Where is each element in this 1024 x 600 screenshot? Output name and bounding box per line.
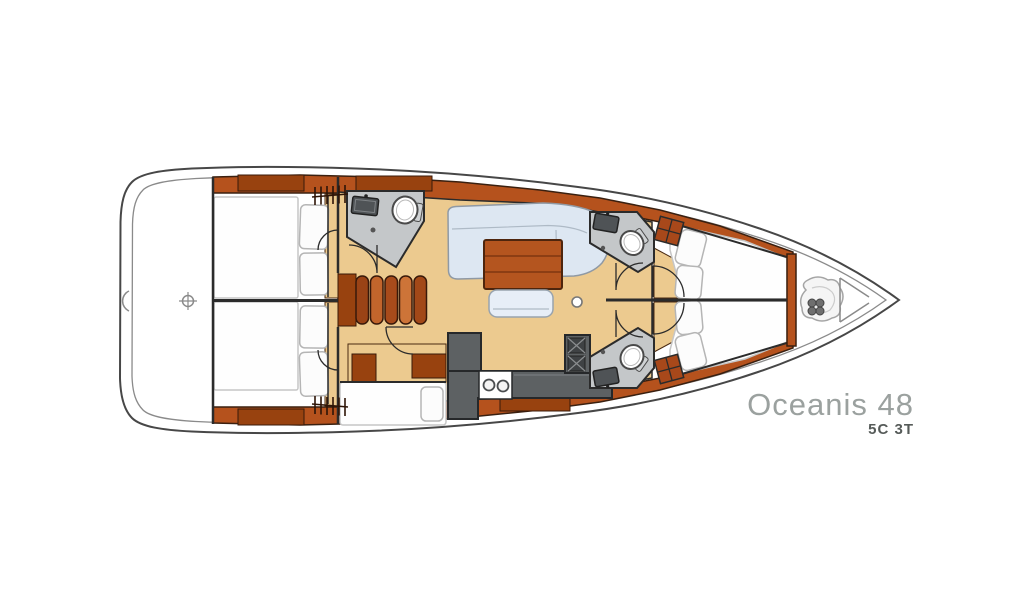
- aft-cabin-starboard: [214, 302, 338, 406]
- pillow: [421, 387, 443, 421]
- pillow: [675, 265, 704, 300]
- yacht-floor-plan: [0, 0, 1024, 600]
- salon-bench: [489, 290, 553, 317]
- stair-step: [385, 276, 398, 324]
- deck-hatch-icon: [654, 216, 683, 245]
- pillow: [300, 253, 329, 295]
- forward-bulkhead: [787, 254, 796, 346]
- stair-step: [371, 276, 384, 324]
- galley-counter-forward: [448, 333, 481, 373]
- drain-dot: [601, 350, 605, 354]
- stair-step: [414, 276, 427, 324]
- locker-head-top: [356, 176, 432, 191]
- skipper-cabinet: [352, 354, 376, 382]
- aft-cabin-port: [214, 194, 338, 298]
- model-name: Oceanis 48: [747, 389, 914, 420]
- mast-post: [572, 297, 582, 307]
- drain-dot: [371, 228, 376, 233]
- stair-step: [400, 276, 413, 324]
- pillow: [299, 205, 329, 250]
- deck-hatch-icon: [654, 354, 683, 383]
- locker-aft-starboard: [238, 409, 304, 425]
- aft-port-bed: [214, 197, 298, 298]
- pillow: [300, 306, 329, 348]
- aft-starboard-bed: [214, 302, 298, 390]
- drain-dot: [601, 246, 605, 250]
- locker-aft-port: [238, 175, 304, 191]
- plan-title: Oceanis 48 5C 3T: [747, 389, 914, 437]
- pillow: [675, 300, 704, 335]
- stair-landing: [338, 274, 356, 326]
- stair-step: [356, 276, 369, 324]
- pillow: [299, 352, 329, 397]
- sink-bowl: [484, 380, 495, 391]
- salon-table: [484, 240, 562, 289]
- skipper-cabin: [340, 344, 446, 425]
- skipper-cabinet: [412, 354, 446, 378]
- variant-code: 5C 3T: [747, 422, 914, 437]
- locker-galley-bottom: [500, 398, 570, 411]
- sink-bowl: [498, 381, 509, 392]
- yacht-floor-plan-page: Oceanis 48 5C 3T: [0, 0, 1024, 600]
